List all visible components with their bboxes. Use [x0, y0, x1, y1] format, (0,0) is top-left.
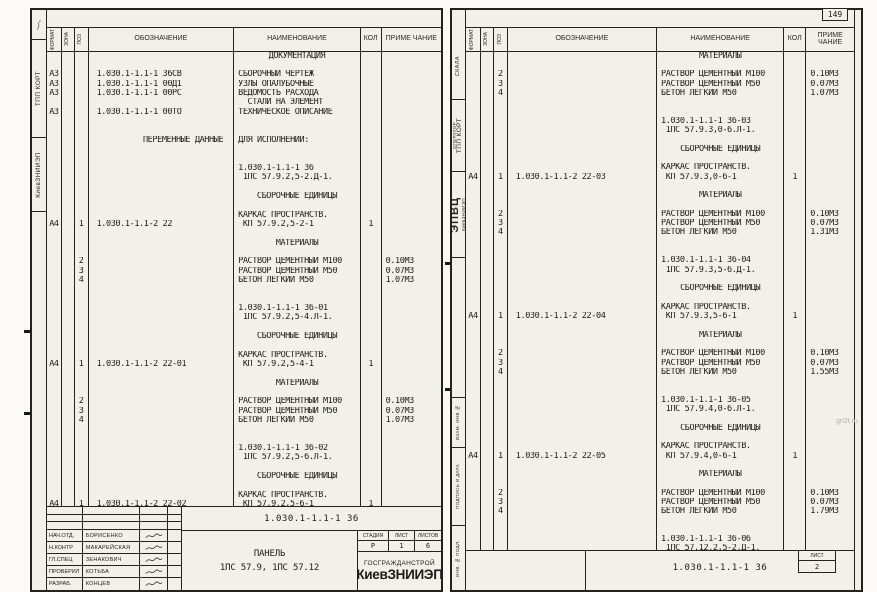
cell-zone [62, 472, 75, 481]
cell-zone [481, 396, 494, 405]
cell-primechanie [382, 117, 441, 126]
cell-primechanie [806, 256, 854, 265]
cell-naimenovanie: БЕТОН ЛЕГКИЙ М50 [234, 276, 361, 285]
cell-naimenovanie: СБОРОЧНЫЙ ЧЕРТЕЖ [234, 70, 361, 79]
cell-format [47, 425, 62, 434]
cell-kol [784, 377, 806, 386]
inv-podl-label: ИНВ. № ПОДЛ. [456, 540, 461, 577]
top-gap [466, 10, 854, 27]
table-row [466, 154, 854, 163]
cell-primechanie: 0.07М3 [382, 267, 441, 276]
cell-primechanie [806, 126, 854, 135]
table-row: 2 РАСТВОР ЦЕМЕНТНЫЙ М100 0.10М3 [466, 210, 854, 219]
cell-primechanie [806, 433, 854, 442]
cell-kol [784, 108, 806, 117]
cell-primechanie [382, 425, 441, 434]
cell-zone [481, 424, 494, 433]
cell-oboznachenie [508, 414, 657, 423]
cell-poz [494, 275, 508, 284]
cell-poz [75, 313, 89, 322]
table-row: СТАЛИ НА ЭЛЕМЕНТ [47, 98, 441, 107]
cell-kol [361, 351, 382, 360]
cell-format [47, 435, 62, 444]
cell-oboznachenie [89, 211, 235, 220]
cell-oboznachenie [89, 182, 235, 191]
cell-primechanie [382, 444, 441, 453]
cell-kol [784, 507, 806, 516]
cell-primechanie [382, 98, 441, 107]
margin-signature-box [32, 10, 46, 40]
cell-format [47, 52, 62, 61]
cell-zone [62, 463, 75, 472]
cell-format [466, 433, 481, 442]
cell-kol [361, 407, 382, 416]
cell-oboznachenie [89, 164, 235, 173]
cell-poz [75, 491, 89, 500]
cell-naimenovanie [234, 425, 361, 434]
sheet-label: ЛИСТ [389, 531, 415, 540]
cell-primechanie [382, 481, 441, 490]
table-row: 1ПС 57.9.2,5-2.Д-1. [47, 173, 441, 182]
table-row: 1.030.1-1.1-1 36-01 [47, 304, 441, 313]
cell-format [466, 52, 481, 61]
cell-naimenovanie: ТЕХНИЧЕСКОЕ ОПИСАНИЕ [234, 108, 361, 117]
table-row: СБОРОЧНЫЕ ЕДИНИЦЫ [47, 192, 441, 201]
cell-poz: 4 [494, 228, 508, 237]
cell-zone [62, 397, 75, 406]
cell-kol [361, 98, 382, 107]
cell-poz: 2 [494, 489, 508, 498]
cell-primechanie: 0.10М3 [806, 349, 854, 358]
table-row [47, 61, 441, 70]
margin-podpis-box: ПОДПИСЬ И ДАТА [452, 448, 465, 526]
table-row: А4 1 1.030.1-1.1-2 22-04 КП 57.9.3,5-6-1… [466, 312, 854, 321]
cell-primechanie [382, 453, 441, 462]
org-label: КиевЗНИИЭП [36, 152, 43, 198]
table-row [466, 517, 854, 526]
table-row [47, 435, 441, 444]
cell-zone [62, 108, 75, 117]
cell-kol [361, 89, 382, 98]
cell-oboznachenie: 1.030.1-1.1-1 36СВ [89, 70, 235, 79]
cell-zone [62, 332, 75, 341]
cell-primechanie [382, 126, 441, 135]
cell-kol [361, 70, 382, 79]
cell-poz [75, 239, 89, 248]
cell-kol [784, 135, 806, 144]
cell-zone [62, 313, 75, 322]
cell-poz [494, 331, 508, 340]
table-row [466, 377, 854, 386]
page-number: 149 [822, 8, 848, 21]
cell-format [466, 145, 481, 154]
cell-kol: 1 [784, 452, 806, 461]
cell-oboznachenie [508, 424, 657, 433]
cell-primechanie [382, 369, 441, 378]
cell-oboznachenie [508, 470, 657, 479]
table-header: ФОРМАТ ЗОНА ПОЗ ОБОЗНАЧЕНИЕ НАИМЕНОВАНИЕ… [47, 27, 441, 52]
cell-zone [62, 351, 75, 360]
cell-oboznachenie: 1.030.1-1.1-1 00ТО [89, 108, 235, 117]
table-row: МАТЕРИАЛЫ [466, 191, 854, 200]
cell-primechanie [806, 470, 854, 479]
cell-naimenovanie: 1.030.1-1.1-1 36-04 [657, 256, 784, 265]
cell-zone [481, 210, 494, 219]
table-row [466, 321, 854, 330]
cell-naimenovanie: КП 57.9.2,5-2-1 [234, 220, 361, 229]
cell-oboznachenie [89, 425, 235, 434]
table-row [47, 341, 441, 350]
staff-date [168, 578, 181, 590]
cell-naimenovanie [657, 386, 784, 395]
cell-format [466, 526, 481, 535]
cell-format [47, 481, 62, 490]
cell-zone [481, 470, 494, 479]
table-row: 3 РАСТВОР ЦЕМЕНТНЫЙ М50 0.07М3 [466, 359, 854, 368]
cell-zone [62, 70, 75, 79]
title-block-right: 1.030.1-1.1-1 36 ПАНЕЛЬ 1ПС 57.9, 1ПС 57… [182, 507, 441, 590]
document-designation: 1.030.1-1.1-1 36 [182, 507, 441, 531]
cell-primechanie: 0.10М3 [806, 210, 854, 219]
cell-naimenovanie: 1ПС 57.9.4,0-6.Л-1. [657, 405, 784, 414]
cell-poz [494, 61, 508, 70]
cell-format [466, 191, 481, 200]
table-row: А3 1.030.1-1.1-1 00РС ВЕДОМОСТЬ РАСХОДА [47, 89, 441, 98]
cell-zone [62, 341, 75, 350]
cell-format [466, 442, 481, 451]
cell-format [47, 463, 62, 472]
staff-row: РАЗРАБ. КОНЦЕВ [47, 578, 181, 590]
table-row: СБОРОЧНЫЕ ЕДИНИЦЫ [47, 472, 441, 481]
cell-format [47, 341, 62, 350]
cell-oboznachenie [508, 200, 657, 209]
cell-kol [361, 388, 382, 397]
table-body: МАТЕРИАЛЫ 2 [466, 52, 854, 551]
cell-zone [481, 256, 494, 265]
cell-oboznachenie: 1.030.1-1.1-2 22-04 [508, 312, 657, 321]
cell-poz [75, 145, 89, 154]
operator-name: СКАЛА [456, 56, 462, 76]
cell-oboznachenie [89, 323, 235, 332]
cell-poz [75, 136, 89, 145]
table-row: 2 РАСТВОР ЦЕМЕНТНЫЙ М100 0.10М3 [466, 349, 854, 358]
table-row: 1.030.1-1.1-1 36-03 [466, 117, 854, 126]
cell-format [466, 517, 481, 526]
cell-format [466, 470, 481, 479]
cell-naimenovanie: ДОКУМЕНТАЦИЯ [234, 52, 361, 61]
cell-kol [784, 80, 806, 89]
signature-icon [143, 556, 165, 564]
table-row: МАТЕРИАЛЫ [47, 239, 441, 248]
cell-naimenovanie: РАСТВОР ЦЕМЕНТНЫЙ М100 [657, 489, 784, 498]
top-gap [47, 10, 441, 27]
table-row: ДОКУМЕНТАЦИЯ [47, 52, 441, 61]
margin-empty-mid [452, 258, 465, 398]
table-row [47, 285, 441, 294]
table-row: А4 1 1.030.1-1.1-2 22 КП 57.9.2,5-2-1 1 [47, 220, 441, 229]
cell-poz [75, 472, 89, 481]
cell-primechanie: 0.07М3 [806, 359, 854, 368]
cell-oboznachenie [89, 472, 235, 481]
scan-tick [445, 262, 451, 265]
cell-zone [62, 89, 75, 98]
document-title: ПАНЕЛЬ 1ПС 57.9, 1ПС 57.12 [182, 531, 358, 590]
watermark: gn2t.ru [836, 418, 858, 425]
cell-format [47, 145, 62, 154]
cell-kol [784, 461, 806, 470]
organization: ГОСГРАЖДАНСТРОЙ КиевЗНИИЭП [358, 552, 441, 590]
right-margin-strip: СКАЛА ОПЕРАТОР ТПП КОРТ ЭПВЦ КиевЗНИИЭП … [452, 10, 466, 590]
cell-zone [481, 275, 494, 284]
cell-oboznachenie [508, 377, 657, 386]
cell-poz [494, 117, 508, 126]
cell-format [466, 126, 481, 135]
table-row: 3 РАСТВОР ЦЕМЕНТНЫЙ М50 0.07М3 [466, 498, 854, 507]
cell-naimenovanie: СТАЛИ НА ЭЛЕМЕНТ [234, 98, 361, 107]
cell-kol [784, 293, 806, 302]
cell-kol [784, 266, 806, 275]
table-row [466, 414, 854, 423]
cell-oboznachenie [89, 332, 235, 341]
cell-primechanie [382, 351, 441, 360]
cell-format: А4 [466, 173, 481, 182]
table-row: 2 РАСТВОР ЦЕМЕНТНЫЙ М100 0.10М3 [466, 70, 854, 79]
cell-naimenovanie [234, 182, 361, 191]
cell-format [47, 407, 62, 416]
staff-signature [140, 530, 168, 541]
cell-poz [494, 405, 508, 414]
header-primechanie: ПРИМЕ ЧАНИЕ [806, 28, 854, 51]
cell-zone [62, 126, 75, 135]
cell-primechanie [382, 323, 441, 332]
cell-poz: 1 [75, 220, 89, 229]
table-row: 1ПС 57.9.3,0-6.Л-1. [466, 126, 854, 135]
cell-format [466, 219, 481, 228]
table-row [466, 293, 854, 302]
cell-zone [481, 61, 494, 70]
cell-zone [481, 340, 494, 349]
cell-zone [481, 70, 494, 79]
cell-poz [75, 463, 89, 472]
table-row [47, 295, 441, 304]
cell-oboznachenie [508, 163, 657, 172]
cell-primechanie [382, 285, 441, 294]
table-row [466, 61, 854, 70]
header-format: ФОРМАТ [47, 28, 62, 51]
cell-poz: 3 [494, 498, 508, 507]
staff-rows: НАЧ.ОТД. БОРИСЕНКО Н.КОНТР МАКАРЕЙСКАЯ [47, 530, 181, 590]
cell-naimenovanie [657, 433, 784, 442]
cell-oboznachenie [89, 463, 235, 472]
cell-naimenovanie [234, 369, 361, 378]
cell-poz [494, 414, 508, 423]
cell-primechanie [806, 191, 854, 200]
cell-primechanie [382, 182, 441, 191]
cell-naimenovanie [657, 135, 784, 144]
cell-oboznachenie [508, 145, 657, 154]
cell-format [47, 388, 62, 397]
cell-zone [481, 219, 494, 228]
staff-role: ГЛ.СПЕЦ [47, 554, 83, 565]
table-row: 3 РАСТВОР ЦЕМЕНТНЫЙ М50 0.07М3 [47, 407, 441, 416]
org-line2: КиевЗНИИЭП [356, 567, 441, 582]
cell-kol [361, 463, 382, 472]
cell-naimenovanie: КП 57.9.3,5-6-1 [657, 312, 784, 321]
cell-format [47, 323, 62, 332]
cell-primechanie [806, 331, 854, 340]
table-row: 4 БЕТОН ЛЕГКИЙ М50 1.07М3 [47, 276, 441, 285]
cell-oboznachenie [89, 276, 235, 285]
cell-poz [75, 173, 89, 182]
cell-kol [361, 295, 382, 304]
cell-primechanie [806, 182, 854, 191]
cell-zone [62, 136, 75, 145]
cell-poz [494, 247, 508, 256]
cell-format [466, 396, 481, 405]
cell-primechanie [382, 164, 441, 173]
cell-poz [75, 369, 89, 378]
cell-primechanie [806, 135, 854, 144]
cell-kol [784, 210, 806, 219]
table-row [47, 463, 441, 472]
cell-format [47, 126, 62, 135]
table-row [47, 201, 441, 210]
cell-primechanie [382, 192, 441, 201]
cell-format [466, 535, 481, 544]
cell-kol [361, 332, 382, 341]
cell-naimenovanie: РАСТВОР ЦЕМЕНТНЫЙ М50 [234, 267, 361, 276]
title-line2: 1ПС 57.9, 1ПС 57.12 [220, 563, 319, 573]
cell-poz [75, 154, 89, 163]
cell-poz [494, 108, 508, 117]
header-zone: ЗОНА [62, 28, 75, 51]
cell-format [466, 135, 481, 144]
cell-zone [62, 323, 75, 332]
margin-inv-box: ИНВ. № ПОДЛ. [452, 526, 465, 590]
cell-kol [784, 349, 806, 358]
table-row [466, 386, 854, 395]
cell-poz [75, 341, 89, 350]
staff-row: Н.КОНТР МАКАРЕЙСКАЯ [47, 542, 181, 554]
cell-primechanie [382, 360, 441, 369]
cell-oboznachenie [89, 229, 235, 238]
cell-zone [62, 295, 75, 304]
cell-poz [494, 284, 508, 293]
table-row: МАТЕРИАЛЫ [466, 331, 854, 340]
cell-format [466, 461, 481, 470]
staff-row: ГЛ.СПЕЦ ЗЕНАКОВИЧ [47, 554, 181, 566]
cell-oboznachenie [89, 285, 235, 294]
cell-format [47, 267, 62, 276]
cell-format [466, 507, 481, 516]
cell-naimenovanie [234, 341, 361, 350]
cell-poz [75, 425, 89, 434]
cell-oboznachenie [89, 248, 235, 257]
margin-epvc-box: ЭПВЦ КиевЗНИИЭП [452, 172, 465, 258]
cell-poz [75, 201, 89, 210]
cell-format [466, 182, 481, 191]
cell-oboznachenie [89, 369, 235, 378]
cell-primechanie: 1.31М3 [806, 228, 854, 237]
cell-zone [62, 98, 75, 107]
cell-oboznachenie [508, 359, 657, 368]
cell-primechanie: 1.79М3 [806, 507, 854, 516]
cell-zone [62, 388, 75, 397]
cell-poz [494, 135, 508, 144]
cell-poz: 4 [75, 416, 89, 425]
cell-primechanie [806, 266, 854, 275]
table-row [47, 182, 441, 191]
cell-primechanie [382, 304, 441, 313]
cell-primechanie [806, 535, 854, 544]
cell-poz [75, 435, 89, 444]
revision-row [47, 522, 181, 530]
cell-format [466, 377, 481, 386]
cell-naimenovanie: МАТЕРИАЛЫ [234, 379, 361, 388]
left-table: ФОРМАТ ЗОНА ПОЗ ОБОЗНАЧЕНИЕ НАИМЕНОВАНИЕ… [47, 10, 441, 590]
cell-zone [481, 108, 494, 117]
table-row [47, 229, 441, 238]
cell-format [47, 117, 62, 126]
cell-naimenovanie [657, 182, 784, 191]
cell-poz [75, 453, 89, 462]
cell-zone [62, 61, 75, 70]
cell-primechanie [806, 200, 854, 209]
table-row [47, 388, 441, 397]
cell-primechanie: 0.10М3 [382, 397, 441, 406]
cell-poz [75, 80, 89, 89]
cell-zone [481, 173, 494, 182]
cell-poz [494, 303, 508, 312]
cell-poz [494, 266, 508, 275]
cell-format [47, 332, 62, 341]
cell-poz [75, 126, 89, 135]
cell-kol [784, 98, 806, 107]
cell-kol [784, 191, 806, 200]
sheets-label: ЛИСТОВ [415, 531, 441, 540]
cell-naimenovanie [234, 435, 361, 444]
cell-kol [784, 61, 806, 70]
cell-poz: 2 [494, 349, 508, 358]
cell-kol [784, 321, 806, 330]
cell-kol [361, 444, 382, 453]
cell-kol [361, 276, 382, 285]
cell-naimenovanie: 1ПС 57.9.3,5-6.Д-1. [657, 266, 784, 275]
cell-naimenovanie [657, 479, 784, 488]
header-naimenovanie: НАИМЕНОВАНИЕ [657, 28, 784, 51]
podpis-data-label: ПОДПИСЬ И ДАТА [456, 464, 461, 509]
cell-primechanie [806, 154, 854, 163]
cell-oboznachenie [508, 303, 657, 312]
cell-poz [494, 256, 508, 265]
cell-zone [481, 377, 494, 386]
cell-zone [481, 312, 494, 321]
cell-oboznachenie [508, 135, 657, 144]
table-row: А4 1 1.030.1-1.1-2 22-05 КП 57.9.4,0-6-1… [466, 452, 854, 461]
cell-kol [361, 126, 382, 135]
table-row: 2 РАСТВОР ЦЕМЕНТНЫЙ М100 0.10М3 [466, 489, 854, 498]
cell-oboznachenie [508, 517, 657, 526]
cell-oboznachenie [508, 489, 657, 498]
cell-oboznachenie [508, 98, 657, 107]
cell-format [466, 163, 481, 172]
cell-primechanie [806, 479, 854, 488]
table-row: 1ПС 57.9.3,5-6.Д-1. [466, 266, 854, 275]
cell-oboznachenie [508, 89, 657, 98]
cell-oboznachenie [508, 331, 657, 340]
cell-format [47, 136, 62, 145]
cell-oboznachenie [508, 284, 657, 293]
